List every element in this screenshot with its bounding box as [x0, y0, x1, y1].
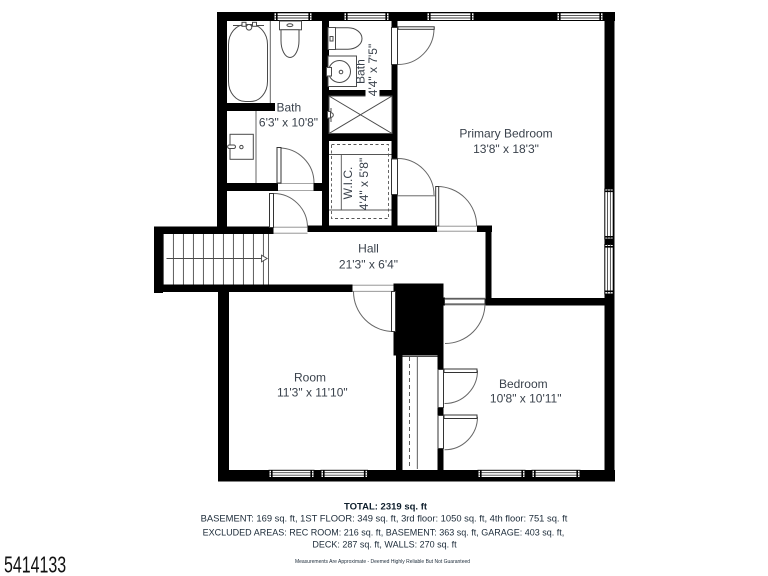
svg-text:Measurements Are Approximate -: Measurements Are Approximate - Deemed Hi… — [295, 559, 470, 565]
svg-text:DECK: 287 sq. ft, WALLS: 270 s: DECK: 287 sq. ft, WALLS: 270 sq. ft — [312, 540, 457, 550]
svg-text:BASEMENT: 169 sq. ft, 1ST FLOO: BASEMENT: 169 sq. ft, 1ST FLOOR: 349 sq.… — [201, 513, 568, 524]
svg-text:5414133: 5414133 — [4, 553, 66, 576]
svg-text:Primary Bedroom: Primary Bedroom — [459, 127, 552, 141]
svg-text:EXCLUDED AREAS: REC ROOM: 216: EXCLUDED AREAS: REC ROOM: 216 sq. ft, BA… — [203, 528, 565, 538]
svg-text:W.I.C.: W.I.C. — [341, 167, 355, 200]
svg-text:Bath: Bath — [276, 101, 301, 115]
svg-text:4'4" x 7'5": 4'4" x 7'5" — [366, 44, 380, 96]
svg-text:4'4" x 5'8": 4'4" x 5'8" — [357, 158, 371, 210]
svg-text:11'3" x 11'10": 11'3" x 11'10" — [277, 386, 348, 400]
svg-text:21'3" x 6'4": 21'3" x 6'4" — [339, 257, 398, 271]
svg-text:Bedroom: Bedroom — [499, 377, 548, 391]
svg-text:Room: Room — [294, 371, 326, 385]
svg-text:10'8" x 10'11": 10'8" x 10'11" — [490, 392, 562, 406]
svg-text:TOTAL: 2319 sq. ft: TOTAL: 2319 sq. ft — [344, 502, 428, 513]
svg-text:6'3" x 10'8": 6'3" x 10'8" — [259, 116, 318, 130]
svg-text:13'8" x 18'3": 13'8" x 18'3" — [473, 142, 539, 156]
svg-text:Hall: Hall — [358, 242, 379, 256]
